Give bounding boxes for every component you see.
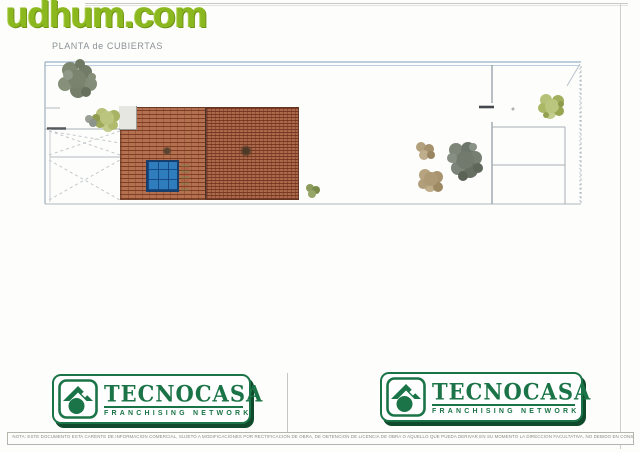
brand-subtitle: FRANCHISING NETWORK [432,404,575,415]
tecnocasa-house-icon [386,377,426,417]
tree-yellow-green-left [92,108,120,132]
tree-tiny-green-bottom [306,184,320,198]
disclaimer-text: NOTA: ESTE DOCUMENTO ESTA CARENTE DE INF… [8,433,634,439]
brand-name: TECNOCASA [432,379,575,404]
tecnocasa-logo-left: TECNOCASA FRANCHISING NETWORK [52,374,251,424]
tecnocasa-house-icon [58,379,98,419]
brand-name: TECNOCASA [104,381,243,406]
brand-subtitle: FRANCHISING NETWORK [104,406,243,417]
disclaimer-strip: NOTA: ESTE DOCUMENTO ESTA CARENTE DE INF… [7,432,634,445]
tree-gray-large-center [447,142,483,181]
logo-divider-line [287,373,288,432]
tree-green-right [538,94,564,119]
tecnocasa-logo-right: TECNOCASA FRANCHISING NETWORK [380,372,583,422]
tree-tan-small-center [416,142,435,160]
tree-tan-lower-center [418,169,443,192]
scanned-roof-plan-page: udhum.com PLANTA de CUBIERTAS [0,0,640,452]
tree-dark-olive-top-left [58,59,97,98]
